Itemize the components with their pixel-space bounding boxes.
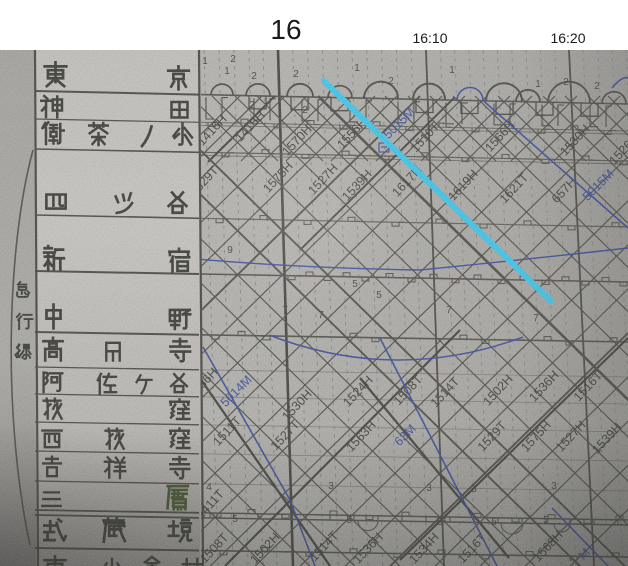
svg-text:16:20: 16:20 (550, 30, 585, 46)
svg-text:16: 16 (270, 14, 301, 45)
svg-text:16:10: 16:10 (412, 30, 447, 46)
